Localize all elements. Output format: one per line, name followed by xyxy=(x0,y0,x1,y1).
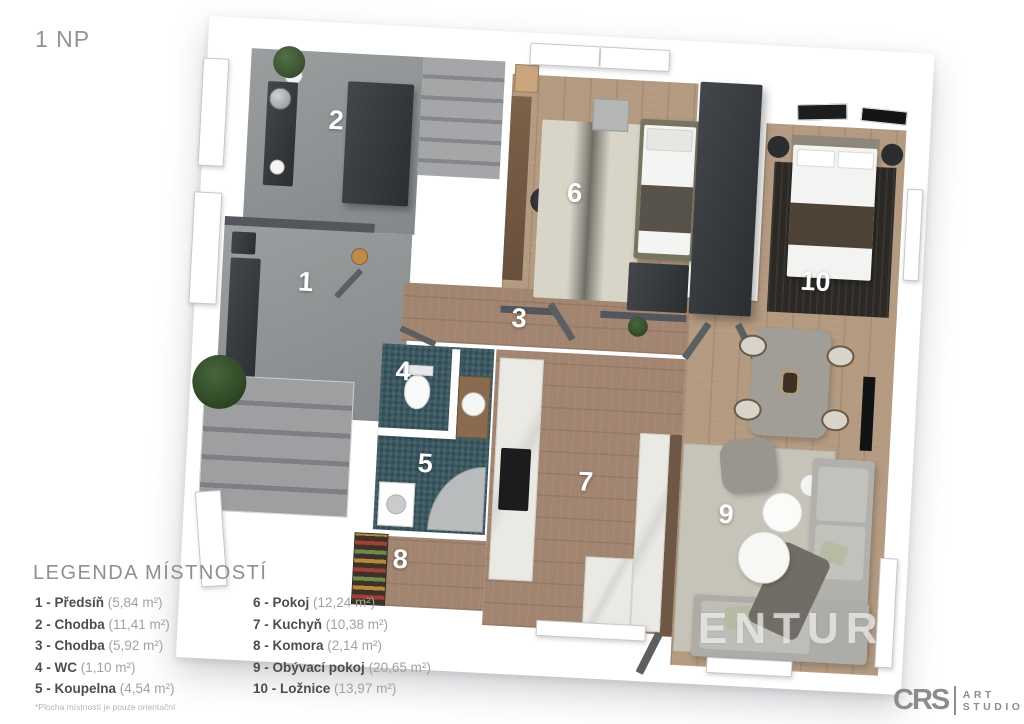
logo-divider xyxy=(954,686,956,715)
armchair xyxy=(718,436,778,495)
legend-title: LEGENDA MÍSTNOSTÍ xyxy=(33,562,267,585)
interior-staircase xyxy=(417,57,505,179)
room-label-9: 9 xyxy=(718,499,735,531)
bed-single-blanket xyxy=(639,185,693,234)
page-title: 1 NP xyxy=(35,26,90,53)
wardrobe-hall xyxy=(342,81,414,206)
legend-item: 7 - Kuchyň (10,38 m²) xyxy=(253,617,431,639)
room-label-7: 7 xyxy=(577,466,594,498)
room-label-8: 8 xyxy=(392,544,409,576)
legend-item: 3 - Chodba (5,92 m²) xyxy=(35,638,175,660)
room-label-3: 3 xyxy=(511,303,528,335)
footnote: *Plocha místností je pouze orientační xyxy=(35,702,175,712)
bed-single-pillow xyxy=(646,128,693,152)
wardrobe-tall xyxy=(689,82,763,317)
window-hall-left-lower xyxy=(188,191,222,304)
room-label-5: 5 xyxy=(417,448,434,480)
legend-item: 6 - Pokoj (12,24 m²) xyxy=(253,595,431,617)
legend: LEGENDA MÍSTNOSTÍ 1 - Předsíň (5,84 m²) … xyxy=(33,562,267,585)
bed-double-blanket xyxy=(788,203,874,249)
room-label-1: 1 xyxy=(297,266,314,298)
cooktop xyxy=(498,448,531,511)
nightstand-room6 xyxy=(592,98,630,132)
legend-column-1: 1 - Předsíň (5,84 m²) 2 - Chodba (11,41 … xyxy=(35,595,175,703)
corner-shelf xyxy=(514,64,539,93)
legend-item: 5 - Koupelna (4,54 m²) xyxy=(35,681,175,703)
kitchen-counter-lower xyxy=(582,556,634,630)
logo-abbr: CRS xyxy=(893,684,948,717)
room-label-10: 10 xyxy=(800,266,832,299)
crs-logo: CRS ART STUDIO xyxy=(893,684,1023,717)
floor-plan: 1 2 3 4 5 6 7 8 9 10 xyxy=(200,45,909,650)
legend-item: 9 - Obývací pokoj (20,65 m²) xyxy=(253,660,431,682)
room-label-4: 4 xyxy=(395,356,412,388)
bed-double-pillow-right xyxy=(837,151,874,170)
legend-item: 10 - Ložnice (13,97 m²) xyxy=(253,681,431,703)
bed-double-pillow-left xyxy=(796,149,835,168)
legend-item: 2 - Chodba (11,41 m²) xyxy=(35,617,175,639)
watermark: ENTUR xyxy=(698,604,885,654)
shoe-cabinet xyxy=(231,231,256,254)
legend-item: 8 - Komora (2,14 m²) xyxy=(253,638,431,660)
legend-item: 1 - Předsíň (5,84 m²) xyxy=(35,595,175,617)
picture-frame-left xyxy=(797,104,847,121)
legend-column-2: 6 - Pokoj (12,24 m²) 7 - Kuchyň (10,38 m… xyxy=(253,595,431,703)
sofa-cushion-1 xyxy=(816,466,869,523)
room-label-6: 6 xyxy=(566,177,583,209)
wardrobe-room6 xyxy=(627,262,689,313)
legend-item: 4 - WC (1,10 m²) xyxy=(35,660,175,682)
logo-stack: ART STUDIO xyxy=(963,689,1024,713)
dining-candle xyxy=(783,372,798,393)
room-label-2: 2 xyxy=(328,105,345,137)
